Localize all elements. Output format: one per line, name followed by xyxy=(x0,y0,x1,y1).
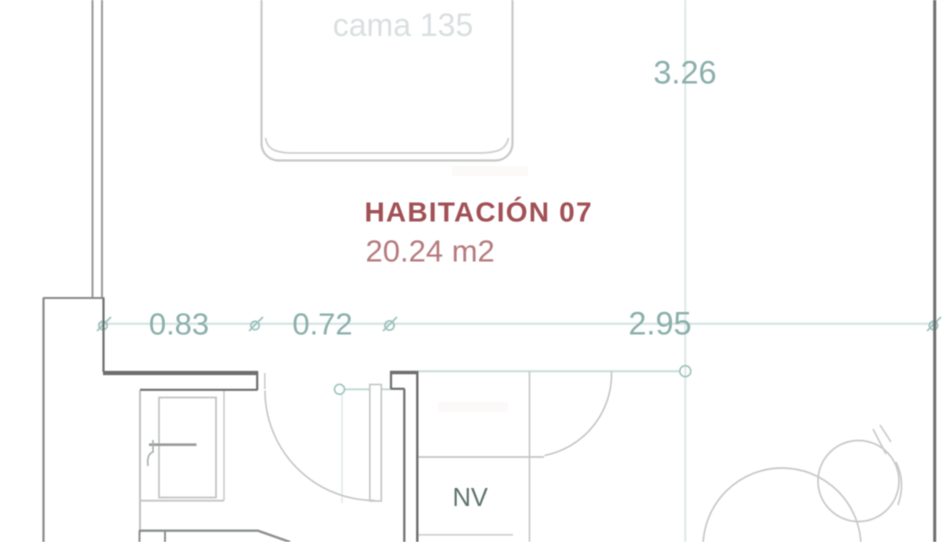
svg-text:cama 135: cama 135 xyxy=(333,7,474,43)
svg-text:0.83: 0.83 xyxy=(149,307,209,342)
svg-text:20.24 m2: 20.24 m2 xyxy=(366,234,495,269)
svg-text:0.72: 0.72 xyxy=(292,307,352,342)
svg-text:2.95: 2.95 xyxy=(628,306,691,342)
svg-text:3.26: 3.26 xyxy=(653,55,716,91)
svg-text:NV: NV xyxy=(453,484,488,512)
svg-text:HABITACIÓN 07: HABITACIÓN 07 xyxy=(365,197,593,228)
